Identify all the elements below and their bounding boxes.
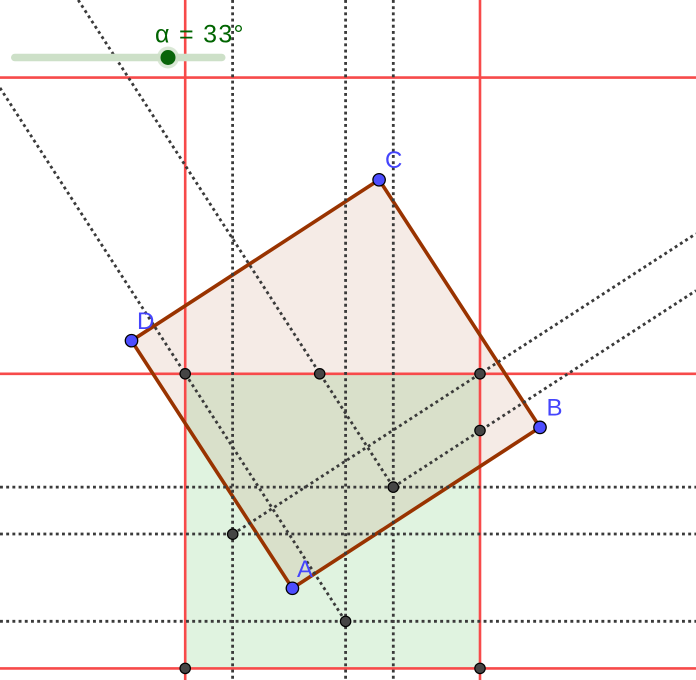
svg-text:D: D	[137, 308, 154, 335]
svg-text:C: C	[385, 147, 402, 174]
svg-text:B: B	[547, 395, 563, 422]
svg-text:α = 33°: α = 33°	[155, 21, 245, 49]
svg-text:A: A	[297, 556, 313, 583]
